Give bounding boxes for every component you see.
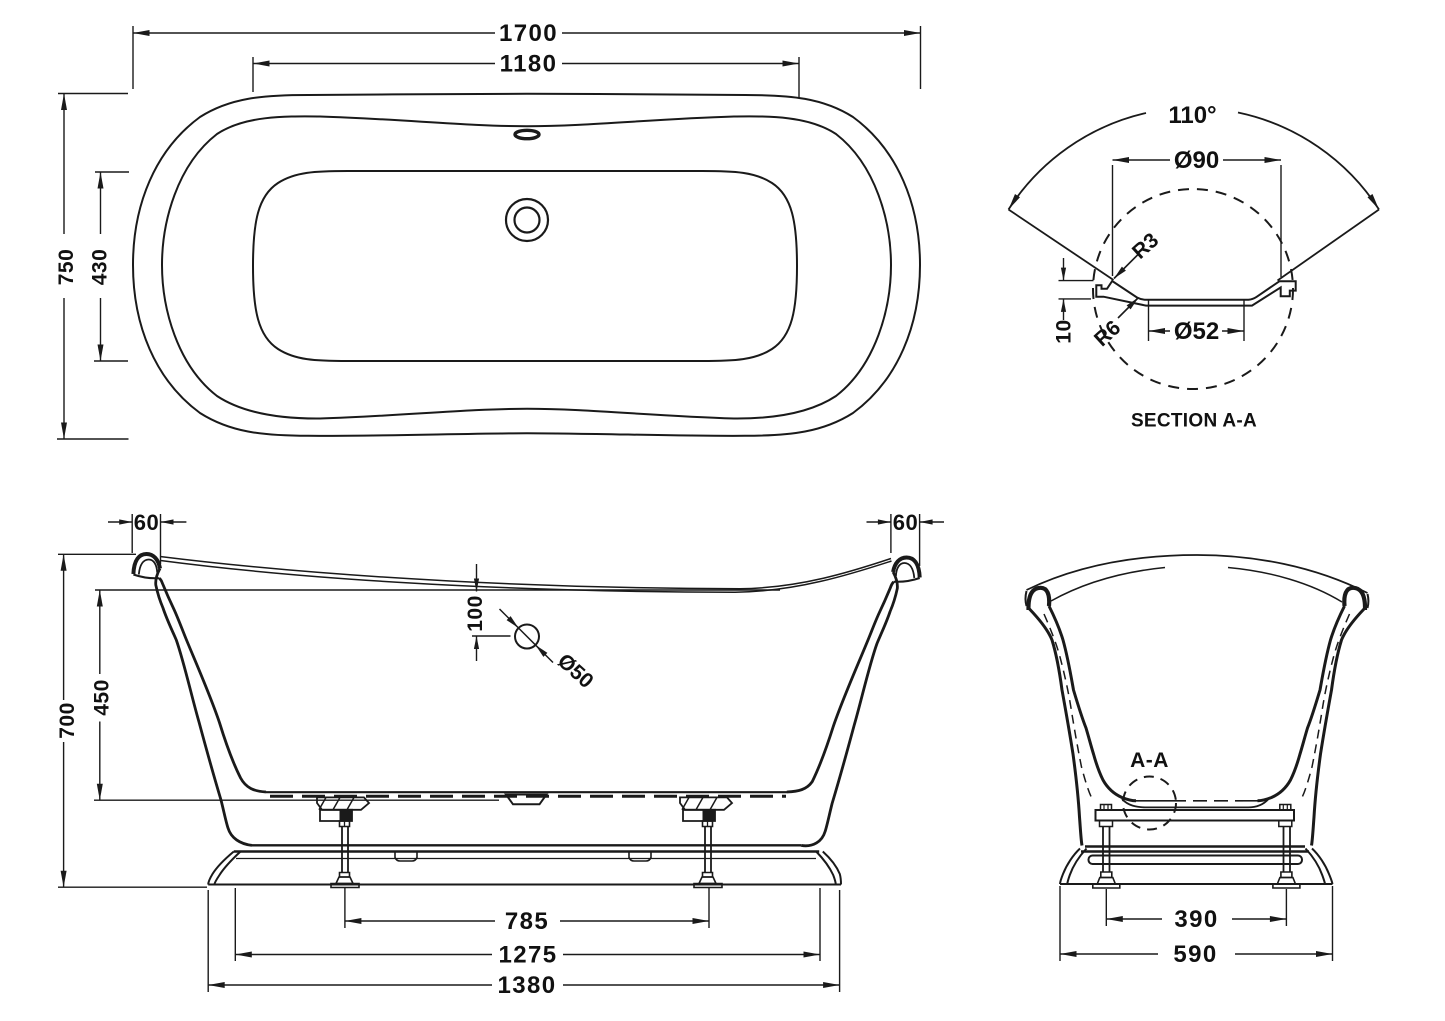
svg-text:700: 700 (56, 702, 79, 739)
svg-text:390: 390 (1174, 906, 1218, 933)
svg-text:110°: 110° (1168, 102, 1216, 129)
svg-text:1380: 1380 (498, 972, 557, 999)
svg-text:100: 100 (464, 595, 487, 632)
svg-text:1700: 1700 (499, 20, 558, 47)
svg-text:10: 10 (1052, 319, 1075, 343)
svg-text:60: 60 (134, 510, 159, 535)
svg-text:590: 590 (1173, 941, 1217, 968)
svg-text:Ø52: Ø52 (1174, 318, 1219, 345)
svg-text:A-A: A-A (1130, 749, 1169, 772)
svg-text:SECTION A-A: SECTION A-A (1131, 411, 1257, 432)
svg-text:60: 60 (893, 510, 918, 535)
svg-text:450: 450 (90, 679, 113, 716)
svg-text:Ø90: Ø90 (1174, 147, 1219, 174)
svg-text:1275: 1275 (499, 942, 558, 969)
svg-text:430: 430 (89, 249, 112, 286)
svg-text:750: 750 (55, 249, 78, 286)
svg-text:1180: 1180 (500, 51, 558, 78)
svg-text:785: 785 (505, 908, 549, 935)
